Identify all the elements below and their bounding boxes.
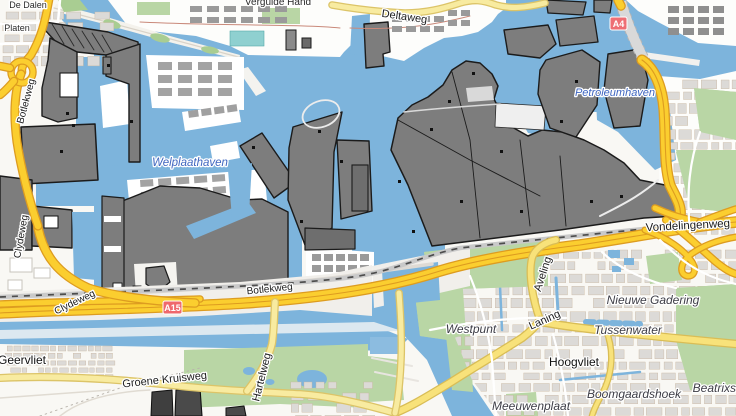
svg-text:De Dalen: De Dalen bbox=[9, 0, 47, 10]
svg-text:Petroleumhaven: Petroleumhaven bbox=[575, 87, 655, 99]
svg-text:Westpunt: Westpunt bbox=[446, 322, 497, 336]
svg-text:A4: A4 bbox=[613, 19, 625, 29]
svg-text:Geervliet: Geervliet bbox=[0, 353, 47, 367]
svg-text:Platen: Platen bbox=[4, 23, 30, 33]
svg-text:Hoogvliet: Hoogvliet bbox=[549, 355, 600, 369]
svg-text:Nieuwe Gadering: Nieuwe Gadering bbox=[607, 293, 700, 307]
svg-text:Meeuwenplaat: Meeuwenplaat bbox=[492, 399, 571, 413]
svg-text:Tussenwater: Tussenwater bbox=[594, 323, 663, 337]
svg-text:A15: A15 bbox=[164, 303, 181, 313]
svg-text:Beatrixst: Beatrixst bbox=[693, 381, 736, 395]
svg-text:Boomgaardshoek: Boomgaardshoek bbox=[587, 387, 682, 401]
svg-text:Welplaathaven: Welplaathaven bbox=[152, 157, 228, 169]
svg-text:Vergulde Hand: Vergulde Hand bbox=[245, 0, 311, 8]
